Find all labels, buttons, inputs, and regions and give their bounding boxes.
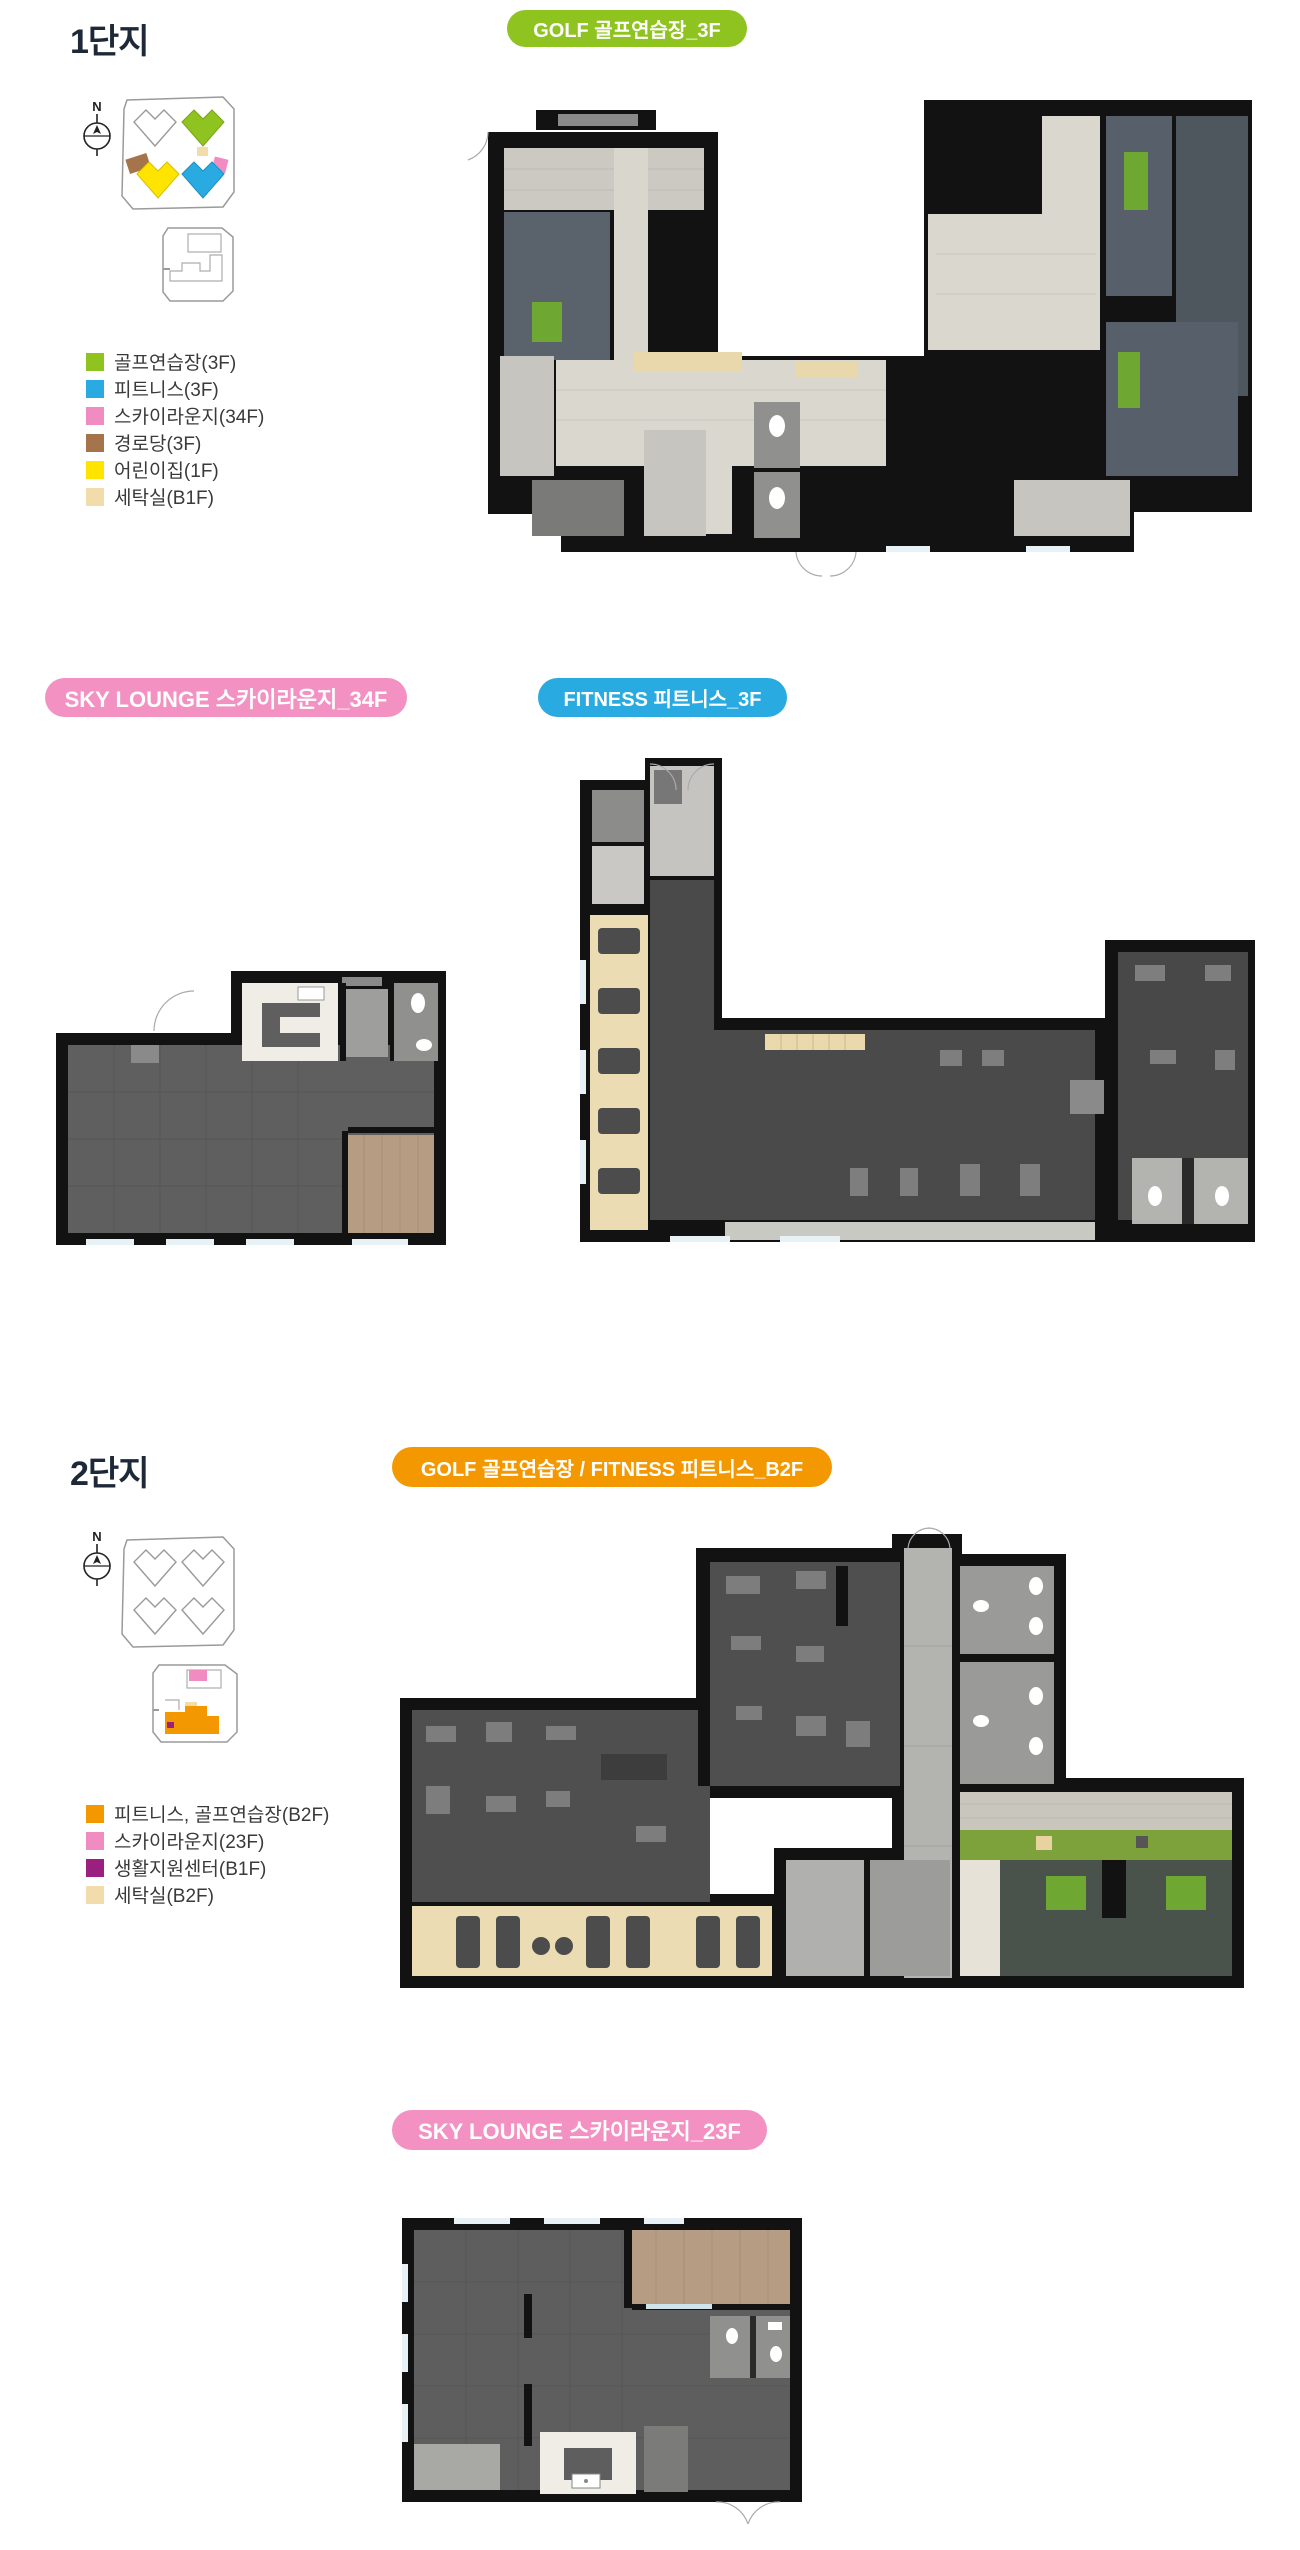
legend-item-senior: 경로당(3F)	[86, 429, 264, 456]
legend-swatch-golf	[86, 353, 104, 371]
legend-item-fitness-golf: 피트니스, 골프연습장(B2F)	[86, 1800, 329, 1827]
legend-item-laundry: 세탁실(B2F)	[86, 1881, 329, 1908]
section1-title: 1단지	[70, 14, 148, 63]
compass-n-label: N	[92, 99, 101, 114]
legend-swatch-fitness	[86, 380, 104, 398]
podium-map-complex1	[156, 223, 240, 307]
legend-swatch-skylounge	[86, 1832, 104, 1850]
legend-swatch-laundry	[86, 488, 104, 506]
legend-swatch-laundry	[86, 1886, 104, 1904]
legend-swatch-support-center	[86, 1859, 104, 1877]
badge-sky-lounge-23f: SKY LOUNGE 스카이라운지_23F	[392, 2110, 767, 2150]
compass-icon: N	[76, 1528, 118, 1588]
legend-swatch-fitness-golf	[86, 1805, 104, 1823]
floorplan-golf-3f	[466, 94, 1256, 578]
badge-golf-fitness-b2f: GOLF 골프연습장 / FITNESS 피트니스_B2F	[392, 1447, 832, 1487]
legend-swatch-senior	[86, 434, 104, 452]
legend-complex1: 골프연습장(3F) 피트니스(3F) 스카이라운지(34F) 경로당(3F) 어…	[86, 348, 264, 510]
legend-item-fitness: 피트니스(3F)	[86, 375, 264, 402]
legend-item-support-center: 생활지원센터(B1F)	[86, 1854, 329, 1881]
legend-item-laundry: 세탁실(B1F)	[86, 483, 264, 510]
floorplan-sky-lounge-23f	[394, 2204, 812, 2526]
site-map-complex1	[113, 94, 241, 218]
badge-fitness-3f: FITNESS 피트니스_3F	[538, 678, 787, 717]
floorplan-golf-fitness-b2f	[396, 1526, 1250, 2010]
podium-map-complex2	[145, 1660, 245, 1748]
floorplan-sky-lounge-34f	[46, 963, 458, 1255]
section2-title: 2단지	[70, 1446, 148, 1495]
legend-item-skylounge: 스카이라운지(23F)	[86, 1827, 329, 1854]
legend-complex2: 피트니스, 골프연습장(B2F) 스카이라운지(23F) 생활지원센터(B1F)…	[86, 1800, 329, 1908]
legend-item-golf: 골프연습장(3F)	[86, 348, 264, 375]
badge-golf-3f: GOLF 골프연습장_3F	[507, 10, 747, 47]
floorplan-fitness-3f	[550, 750, 1262, 1252]
brochure-page: 1단지 GOLF 골프연습장_3F N	[0, 0, 1300, 2550]
legend-swatch-skylounge	[86, 407, 104, 425]
badge-sky-lounge-34f: SKY LOUNGE 스카이라운지_34F	[45, 678, 407, 717]
compass-icon: N	[76, 98, 118, 158]
site-map-complex2	[113, 1534, 241, 1656]
legend-swatch-daycare	[86, 461, 104, 479]
legend-item-skylounge: 스카이라운지(34F)	[86, 402, 264, 429]
legend-item-daycare: 어린이집(1F)	[86, 456, 264, 483]
compass-n-label: N	[92, 1529, 101, 1544]
